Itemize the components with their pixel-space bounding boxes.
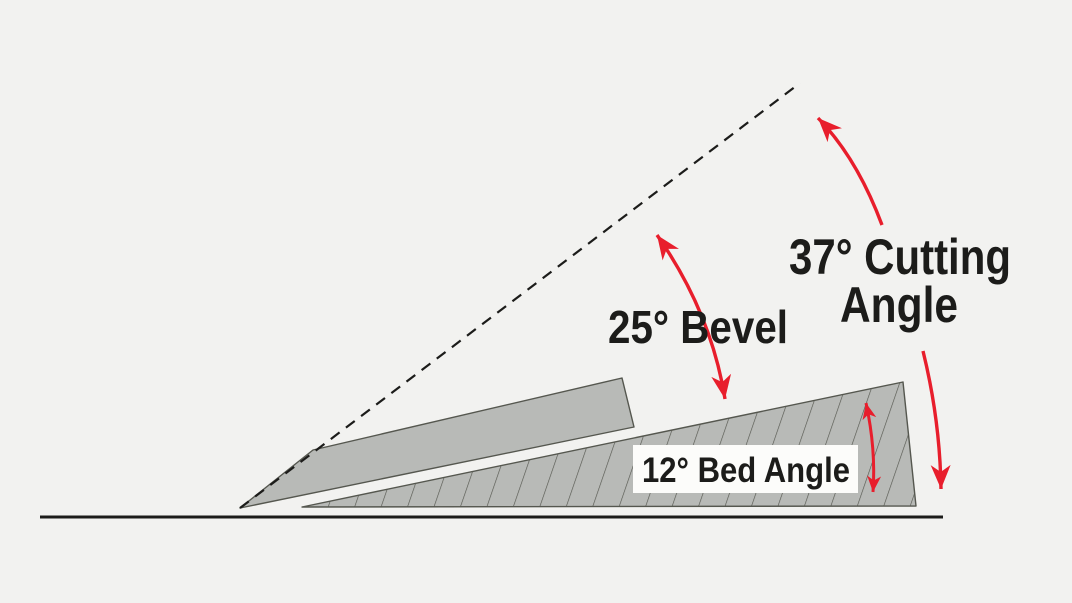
diagram-canvas: 25° Bevel 37° Cutting Angle 12° Bed Angl… — [0, 0, 1072, 603]
cutting-angle-label-line2: Angle — [840, 277, 958, 333]
bed-angle-label: 12° Bed Angle — [642, 451, 850, 490]
bevel-angle-label: 25° Bevel — [608, 301, 788, 353]
blade-angle-diagram: 25° Bevel 37° Cutting Angle 12° Bed Angl… — [0, 0, 1072, 603]
